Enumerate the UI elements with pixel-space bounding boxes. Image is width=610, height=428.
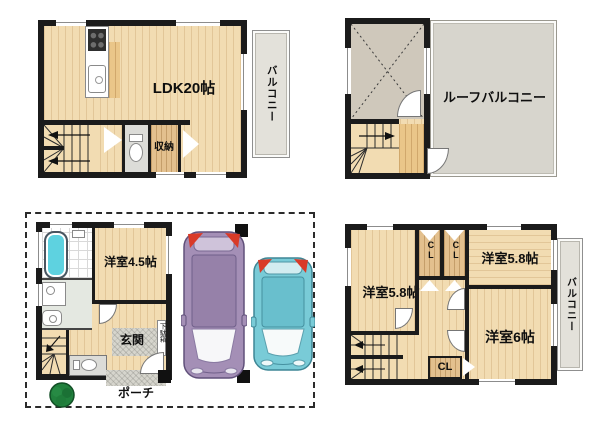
window bbox=[156, 172, 184, 178]
tree-icon bbox=[47, 381, 77, 408]
storage-label: 収納 bbox=[154, 142, 174, 153]
stairs bbox=[44, 125, 100, 172]
shower-counter bbox=[72, 230, 85, 238]
window bbox=[241, 54, 247, 110]
balcony: バルコニー bbox=[557, 238, 583, 371]
faucet-icon bbox=[95, 76, 103, 84]
porch-label: ポーチ bbox=[104, 387, 168, 400]
kitchen-counter bbox=[85, 26, 109, 98]
plan-roof-building bbox=[345, 18, 430, 179]
roof-balcony: ルーフバルコニー bbox=[430, 20, 557, 177]
window bbox=[56, 20, 86, 26]
balcony-label: バルコニー bbox=[565, 277, 576, 332]
shoe-cabinet: 下駄箱 bbox=[157, 320, 166, 356]
washing-machine-icon bbox=[42, 282, 66, 306]
window bbox=[36, 284, 42, 306]
floor-plan-sheet: LDK20帖 収納 bbox=[0, 0, 610, 428]
bathroom bbox=[42, 228, 92, 278]
closet-bottom: CL bbox=[428, 356, 462, 379]
sink-drain bbox=[49, 315, 57, 323]
stair-landing bbox=[399, 124, 424, 173]
closet-label: CL bbox=[425, 240, 435, 260]
balcony-label: バルコニー bbox=[265, 65, 277, 123]
storage-room: 収納 bbox=[151, 125, 178, 172]
door-arc bbox=[99, 304, 117, 324]
window bbox=[50, 222, 72, 228]
washer-dial bbox=[46, 286, 55, 295]
window bbox=[345, 48, 351, 94]
shoe-cabinet-label: 下駄箱 bbox=[158, 323, 165, 343]
kitchen-sink-icon bbox=[88, 65, 106, 93]
stairs bbox=[351, 335, 403, 379]
toilet-icon bbox=[81, 359, 97, 371]
window bbox=[166, 236, 172, 274]
bedroom-4-5-label: 洋室4.5帖 bbox=[95, 256, 166, 269]
window bbox=[345, 248, 351, 286]
window bbox=[36, 232, 42, 268]
interior-wall bbox=[419, 276, 465, 280]
roof-balcony-label: ルーフバルコニー bbox=[431, 91, 558, 105]
balcony: バルコニー bbox=[252, 30, 290, 158]
toilet-room bbox=[69, 355, 107, 376]
pillar bbox=[158, 370, 171, 383]
stairs bbox=[351, 124, 399, 173]
closet-door-mark bbox=[463, 358, 475, 376]
stove-icon bbox=[88, 29, 106, 51]
car-large-icon bbox=[181, 229, 247, 381]
door-swing bbox=[183, 130, 199, 158]
door-swing bbox=[104, 127, 122, 153]
bedroom-6-label: 洋室6帖 bbox=[469, 330, 551, 345]
window bbox=[424, 48, 430, 94]
window bbox=[479, 379, 515, 385]
washroom bbox=[42, 280, 92, 328]
interior-wall bbox=[469, 285, 551, 289]
sink-icon bbox=[42, 310, 62, 326]
plan-bedroom-building: 洋室5.8帖 CL CL 洋室5.8帖 洋室6帖 CL bbox=[345, 224, 557, 385]
bedroom-5-8-left-label: 洋室5.8帖 bbox=[347, 286, 435, 300]
door-arc bbox=[447, 288, 465, 310]
window bbox=[196, 172, 226, 178]
window bbox=[114, 222, 144, 228]
toilet-room bbox=[125, 125, 148, 172]
closet-label: CL bbox=[450, 240, 460, 260]
toilet-tank bbox=[129, 134, 143, 142]
closet-label: CL bbox=[430, 361, 460, 373]
partition-wall bbox=[178, 125, 181, 172]
door-arc bbox=[395, 308, 413, 329]
window bbox=[367, 224, 393, 230]
entrance-label: 玄関 bbox=[120, 334, 144, 347]
window bbox=[176, 20, 220, 26]
toilet-icon bbox=[129, 143, 143, 162]
car-small-icon bbox=[251, 255, 315, 373]
void-room bbox=[351, 24, 424, 119]
toilet-tank bbox=[73, 360, 80, 370]
bedroom-5-8-right-label: 洋室5.8帖 bbox=[469, 252, 551, 266]
bathtub-icon bbox=[44, 231, 68, 279]
ldk-room-label: LDK20帖 bbox=[114, 81, 254, 98]
stairs bbox=[42, 330, 66, 374]
door-arc bbox=[447, 330, 465, 352]
window bbox=[487, 224, 521, 230]
plan-ldk-building: LDK20帖 収納 bbox=[38, 20, 247, 178]
